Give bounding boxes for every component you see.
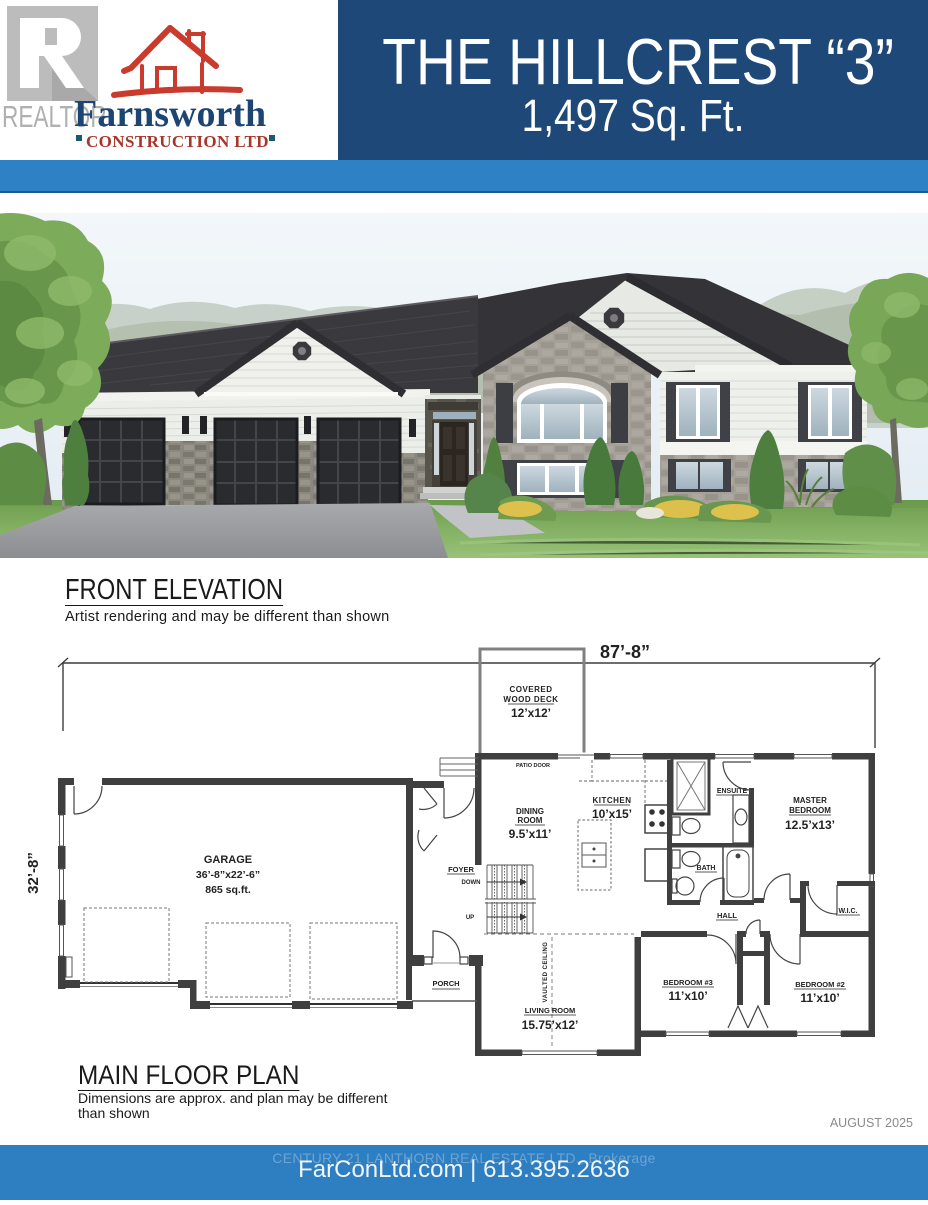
svg-text:15.75’x12’: 15.75’x12’ bbox=[522, 1018, 579, 1032]
svg-text:11’x10’: 11’x10’ bbox=[800, 991, 839, 1005]
svg-text:FOYER: FOYER bbox=[448, 865, 474, 874]
svg-text:KITCHEN: KITCHEN bbox=[592, 796, 631, 805]
svg-text:BEDROOM #2: BEDROOM #2 bbox=[795, 980, 845, 989]
svg-text:11’x10’: 11’x10’ bbox=[668, 989, 707, 1003]
svg-text:HALL: HALL bbox=[717, 911, 737, 920]
svg-text:BEDROOM: BEDROOM bbox=[789, 806, 831, 815]
svg-text:87’-8”: 87’-8” bbox=[600, 642, 650, 662]
svg-text:865 sq.ft.: 865 sq.ft. bbox=[205, 884, 251, 896]
svg-text:12’x12’: 12’x12’ bbox=[511, 706, 551, 720]
svg-text:LIVING ROOM: LIVING ROOM bbox=[525, 1006, 575, 1015]
svg-text:GARAGE: GARAGE bbox=[204, 854, 252, 866]
svg-text:10’x15’: 10’x15’ bbox=[592, 807, 632, 821]
svg-text:UP: UP bbox=[466, 915, 474, 921]
svg-text:MASTER: MASTER bbox=[793, 796, 827, 805]
svg-text:WOOD DECK: WOOD DECK bbox=[503, 695, 558, 704]
svg-text:36’-8”x22’-6”: 36’-8”x22’-6” bbox=[196, 869, 260, 881]
svg-text:BATH: BATH bbox=[697, 865, 716, 872]
svg-text:W.I.C.: W.I.C. bbox=[838, 908, 857, 915]
svg-text:PATIO DOOR: PATIO DOOR bbox=[516, 763, 550, 769]
svg-text:PORCH: PORCH bbox=[432, 979, 459, 988]
svg-text:9.5’x11’: 9.5’x11’ bbox=[509, 827, 552, 841]
svg-text:BEDROOM #3: BEDROOM #3 bbox=[663, 978, 713, 987]
svg-text:32’-8”: 32’-8” bbox=[25, 852, 42, 894]
svg-text:12.5’x13’: 12.5’x13’ bbox=[785, 818, 835, 832]
svg-text:COVERED: COVERED bbox=[509, 685, 552, 694]
svg-text:DOWN: DOWN bbox=[462, 880, 481, 886]
svg-text:VAULTED CEILING: VAULTED CEILING bbox=[543, 942, 549, 1003]
svg-text:ROOM: ROOM bbox=[518, 816, 543, 825]
svg-text:DINING: DINING bbox=[516, 807, 544, 816]
